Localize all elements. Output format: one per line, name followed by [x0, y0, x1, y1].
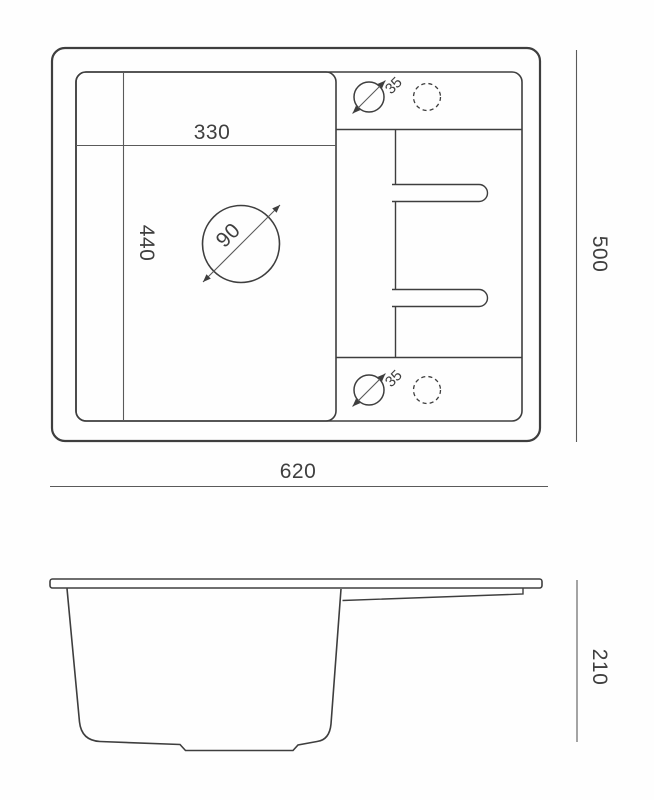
dim-height: 210 — [577, 580, 611, 742]
drainboard-groove-upper — [392, 185, 488, 202]
top-view: 90 35 35 330 — [50, 48, 611, 487]
tap-hole-symbol-top: 35 — [353, 74, 441, 114]
dim-overall-depth-label: 500 — [588, 236, 611, 273]
tap-hole-diameter-label-top: 35 — [382, 74, 406, 98]
side-view: 210 — [50, 579, 611, 751]
side-drainboard-edge — [343, 589, 524, 601]
tap-hole-alt-position-bottom — [414, 377, 441, 404]
dim-bowl-depth: 440 — [124, 72, 159, 421]
dim-overall-depth: 500 — [577, 50, 612, 442]
dim-height-label: 210 — [588, 649, 611, 686]
dim-bowl-depth-label: 440 — [135, 225, 158, 262]
drain-diameter-label: 90 — [212, 219, 245, 252]
sink-technical-drawing: 90 35 35 330 — [0, 0, 654, 800]
dim-bowl-width-label: 330 — [194, 121, 231, 144]
outer-rim-outline — [52, 48, 540, 441]
drain-hole-symbol: 90 — [203, 205, 281, 283]
side-rim-bar — [50, 579, 542, 588]
tap-hole-alt-position-top — [414, 84, 441, 111]
dim-overall-width-label: 620 — [280, 460, 317, 483]
tap-hole-diameter-arrow-top — [353, 81, 386, 114]
tap-hole-diameter-label-bottom: 35 — [382, 367, 406, 391]
dim-overall-width: 620 — [50, 460, 548, 487]
drawing-canvas: 90 35 35 330 — [0, 0, 654, 800]
dim-bowl-width: 330 — [76, 121, 336, 146]
drainboard-groove-lower — [392, 290, 488, 307]
side-bowl-profile — [67, 589, 341, 751]
tap-hole-symbol-bottom: 35 — [353, 367, 441, 407]
tap-hole-diameter-arrow-bottom — [353, 374, 386, 407]
